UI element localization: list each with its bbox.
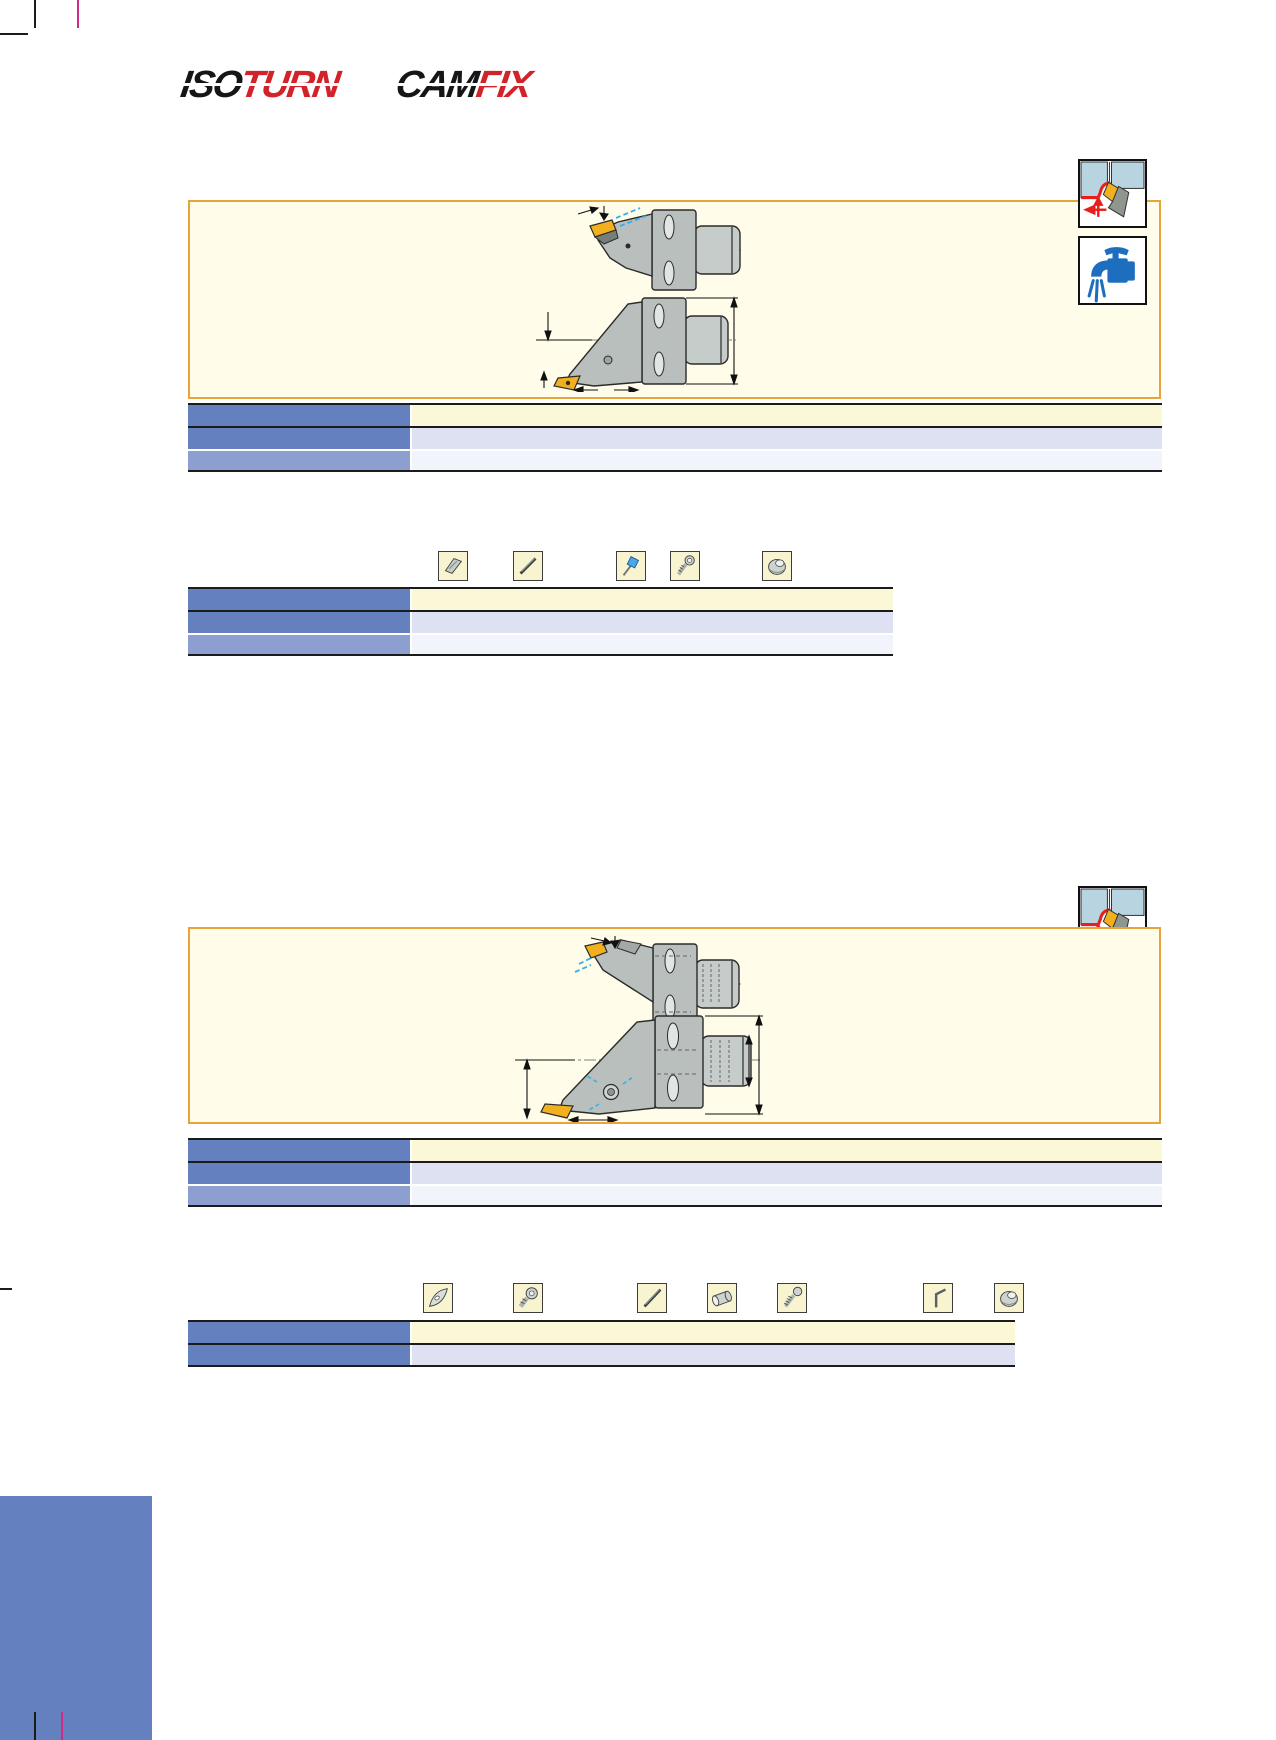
page-tab-block (0, 1496, 152, 1740)
registration-mark (61, 1712, 63, 1740)
registration-mark (34, 1712, 36, 1740)
holder-side-view-drawing (548, 206, 743, 294)
table-value-cell (412, 405, 1162, 426)
dimension-arrows (578, 206, 608, 220)
table-header-cell (188, 405, 412, 426)
table-value-cell (412, 1140, 1162, 1161)
logo-isoturn-red: TURN (238, 64, 341, 106)
holder-side-view-drawing (545, 936, 745, 1026)
table-value-cell (412, 1345, 1015, 1365)
coolant-spray (575, 957, 593, 972)
table-row (188, 451, 1162, 470)
external-turning-application-icon (1078, 159, 1147, 228)
table-header-cell (188, 451, 412, 470)
table-row (188, 1140, 1162, 1163)
table-value-cell (412, 1163, 1162, 1184)
logo-isoturn: ISOTURN (178, 64, 341, 107)
table-value-cell (412, 589, 893, 610)
table-header-cell (188, 635, 412, 654)
table-row (188, 1345, 1015, 1365)
clamp-icon (994, 1283, 1024, 1313)
torx-key-icon (616, 551, 646, 581)
hex-key-icon (923, 1283, 953, 1313)
table-header-cell (188, 612, 412, 633)
table-header-cell (188, 589, 412, 610)
table-row (188, 589, 893, 612)
table-header-cell (188, 1345, 412, 1365)
coolant-icon (1078, 236, 1147, 305)
screw-icon (670, 551, 700, 581)
table-header-cell (188, 1140, 412, 1161)
dimensions-table (188, 1138, 1162, 1207)
spare-parts-table (188, 587, 893, 656)
shim-icon (438, 551, 468, 581)
sleeve-icon (707, 1283, 737, 1313)
insert-icon (423, 1283, 453, 1313)
registration-mark (34, 0, 36, 28)
pin-icon (637, 1283, 667, 1313)
table-value-cell (412, 612, 893, 633)
logo-camfix: CAMFIX (393, 64, 533, 107)
table-row (188, 405, 1162, 428)
table-value-cell (412, 428, 1162, 449)
spare-parts-table (188, 1320, 1015, 1367)
table-row (188, 612, 893, 635)
table-header-cell (188, 1322, 412, 1343)
holder-front-view-drawing (515, 1014, 765, 1122)
table-header-cell (188, 1163, 412, 1184)
pin-icon (513, 551, 543, 581)
logo-isoturn-black: ISO (178, 64, 243, 106)
table-value-cell (412, 451, 1162, 470)
holder-front-view-drawing (536, 292, 741, 392)
table-value-cell (412, 1186, 1162, 1205)
table-row (188, 1186, 1162, 1205)
catalog-page: ISOTURN CAMFIX (0, 0, 1276, 1740)
dimensions-table (188, 403, 1162, 472)
screw-icon (777, 1283, 807, 1313)
table-row (188, 428, 1162, 451)
table-header-cell (188, 1186, 412, 1205)
insert (541, 1104, 573, 1118)
table-value-cell (412, 635, 893, 654)
clamp-icon (762, 551, 792, 581)
table-header-cell (188, 428, 412, 449)
table-value-cell (412, 1322, 1015, 1343)
logo-camfix-red: FIX (474, 64, 533, 106)
registration-mark (0, 33, 28, 35)
table-row (188, 1322, 1015, 1345)
logo-camfix-black: CAM (393, 64, 479, 106)
registration-mark (77, 0, 79, 28)
table-row (188, 635, 893, 654)
registration-mark (0, 1288, 12, 1290)
table-row (188, 1163, 1162, 1186)
cartridge-screw-icon (513, 1283, 543, 1313)
